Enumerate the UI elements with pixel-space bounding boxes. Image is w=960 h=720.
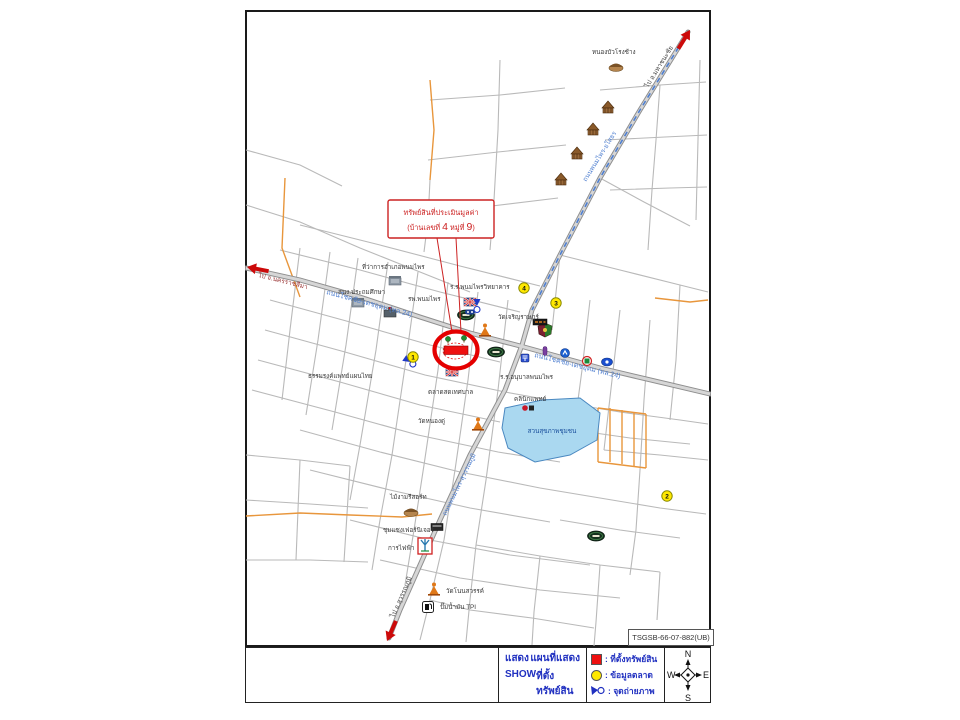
show-line-1: แสดง แผนที่แสดง: [505, 651, 580, 666]
temple-icon: [602, 101, 614, 113]
road-line: [246, 150, 342, 186]
buddha-icon: [479, 324, 491, 337]
road-line: [300, 430, 540, 488]
reference-number: TSGSB-66-07-882(UB): [632, 633, 710, 642]
map-label: ที่ว่าการอำเภอพนมไพร: [362, 262, 425, 271]
show-line-2: SHOW ที่ตั้งทรัพย์สิน: [505, 669, 580, 699]
legend-cell: : ที่ตั้งทรัพย์สิน : ข้อมูลตลาด : จุดถ่า…: [587, 648, 665, 702]
photo-point-icon: [591, 685, 605, 697]
legend-label-property: : ที่ตั้งทรัพย์สิน: [605, 652, 657, 666]
map-canvas: หนองบัวโรงช้างที่ว่าการอำเภอพนมไพรสนง.ปร…: [245, 10, 711, 647]
compass-rose-icon: N S W E: [666, 648, 710, 702]
pylon-icon: [418, 538, 432, 554]
compass-e: E: [703, 670, 709, 680]
road-line: [430, 88, 565, 100]
footer-bar: แสดง แผนที่แสดง SHOW ที่ตั้งทรัพย์สิน : …: [245, 647, 711, 703]
map-label: การไฟฟ้า: [388, 544, 414, 552]
road-line: [560, 255, 708, 292]
market-data-point: 4: [519, 283, 529, 293]
road-line: [657, 572, 660, 620]
bank-icon: [488, 347, 505, 357]
show-word-th-2: แผนที่แสดง: [530, 651, 580, 666]
hut-icon: [609, 64, 623, 72]
property-callout: ทรัพย์สินที่ประเมินมูลค่า(บ้านเลขที่ 4 ห…: [388, 200, 494, 238]
road-name-label: ถนนพนมไพร-สุวรรณภูมิ: [441, 452, 478, 517]
market-data-point: 1: [408, 352, 418, 362]
buddha-icon: [472, 418, 484, 431]
road-line: [532, 556, 540, 645]
map-label: วัดเจริญราษฎร์: [498, 313, 540, 321]
road-line: [604, 310, 620, 450]
map-label: วัดหนองดู่: [418, 418, 445, 425]
map-label: ร.ร.อนุบาลพนมไพร: [500, 373, 554, 381]
legend-row-property: : ที่ตั้งทรัพย์สิน: [591, 651, 662, 667]
map-label: สวนสุขภาพชุมชน: [528, 428, 577, 435]
show-word-en: SHOW: [505, 669, 536, 699]
pump-icon: [423, 602, 434, 613]
legend-row-photo: : จุดถ่ายภาพ: [591, 683, 662, 699]
svg-text:2: 2: [665, 493, 669, 500]
road-line: [610, 187, 707, 190]
buddha-icon: [428, 583, 440, 596]
page: หนองบัวโรงช้างที่ว่าการอำเภอพนมไพรสนง.ปร…: [0, 0, 960, 720]
road-line: [246, 500, 368, 508]
road-line: [344, 466, 350, 562]
star-oval-icon: [602, 358, 613, 366]
compass-n: N: [684, 649, 691, 659]
svg-text:4: 4: [522, 285, 526, 292]
map-label: ชุมแซงเฟอร์นิเจอร์: [383, 526, 435, 534]
ptt-icon: [561, 349, 570, 358]
callout-line2: (บ้านเลขที่ 4 หมู่ที่ 9): [407, 221, 475, 233]
map-label: ธรรมรงค์แพทย์แผนไทย: [308, 372, 373, 380]
building-icon: [389, 276, 401, 285]
minor-road-line: [430, 80, 434, 180]
callout-line1: ทรัพย์สินที่ประเมินมูลค่า: [403, 207, 478, 217]
footer-show-cell: แสดง แผนที่แสดง SHOW ที่ตั้งทรัพย์สิน: [499, 648, 587, 702]
legend-label-photo: : จุดถ่ายภาพ: [608, 684, 655, 698]
road-line: [640, 320, 650, 470]
compass-s: S: [684, 693, 690, 702]
direction-arrow-icon: [382, 619, 401, 644]
map-label: คลินิกแพทย์: [514, 395, 547, 403]
temple-icon: [587, 123, 599, 135]
road-line: [648, 85, 660, 250]
map-label: รพ.พนมไพร: [408, 295, 441, 303]
road-line: [246, 560, 368, 562]
post-icon: [521, 354, 529, 362]
temple-icon: [571, 147, 583, 159]
compass-cell: N S W E: [665, 648, 710, 702]
legend-label-market: : ข้อมูลตลาด: [605, 668, 653, 682]
map-label: ปั๊มน้ำมัน TPI: [440, 602, 476, 611]
road-line: [540, 488, 706, 514]
map-label: ไม้งามรีสอร์ท: [389, 493, 427, 501]
market-data-point: 2: [662, 491, 672, 501]
hut-icon: [404, 509, 418, 517]
road-line: [306, 252, 330, 415]
road-line: [604, 450, 708, 460]
road-line: [600, 178, 690, 226]
pill-navy-icon: [465, 310, 475, 315]
legend-row-market: : ข้อมูลตลาด: [591, 667, 662, 683]
road-line: [594, 565, 600, 646]
svg-text:3: 3: [554, 300, 558, 307]
map-label: หนองบัวโรงช้าง: [592, 48, 636, 56]
road-line: [630, 470, 640, 575]
map-frame: หนองบัวโรงช้างที่ว่าการอำเภอพนมไพรสนง.ปร…: [245, 10, 711, 647]
market-data-point: 3: [551, 298, 561, 308]
road-line: [296, 460, 300, 560]
road-line: [670, 285, 680, 420]
map-label: ตลาดสดเทศบาล: [428, 389, 473, 396]
svg-text:1: 1: [411, 354, 415, 361]
show-word-th-1: แสดง: [505, 651, 529, 666]
road-line: [246, 455, 350, 466]
reference-number-box: TSGSB-66-07-882(UB): [628, 629, 714, 646]
footer-empty-cell: [246, 648, 499, 702]
road-line: [560, 520, 680, 538]
road-line: [332, 258, 358, 430]
temple-icon: [555, 173, 567, 185]
property-square-icon: [591, 654, 602, 665]
bank-icon: [588, 531, 605, 541]
minor-road-line: [655, 298, 708, 302]
road-line: [696, 60, 700, 220]
show-word-th-3: ที่ตั้งทรัพย์สิน: [536, 669, 580, 699]
map-label: วัดโนนสวรรค์: [446, 587, 484, 595]
market-circle-icon: [591, 670, 602, 681]
